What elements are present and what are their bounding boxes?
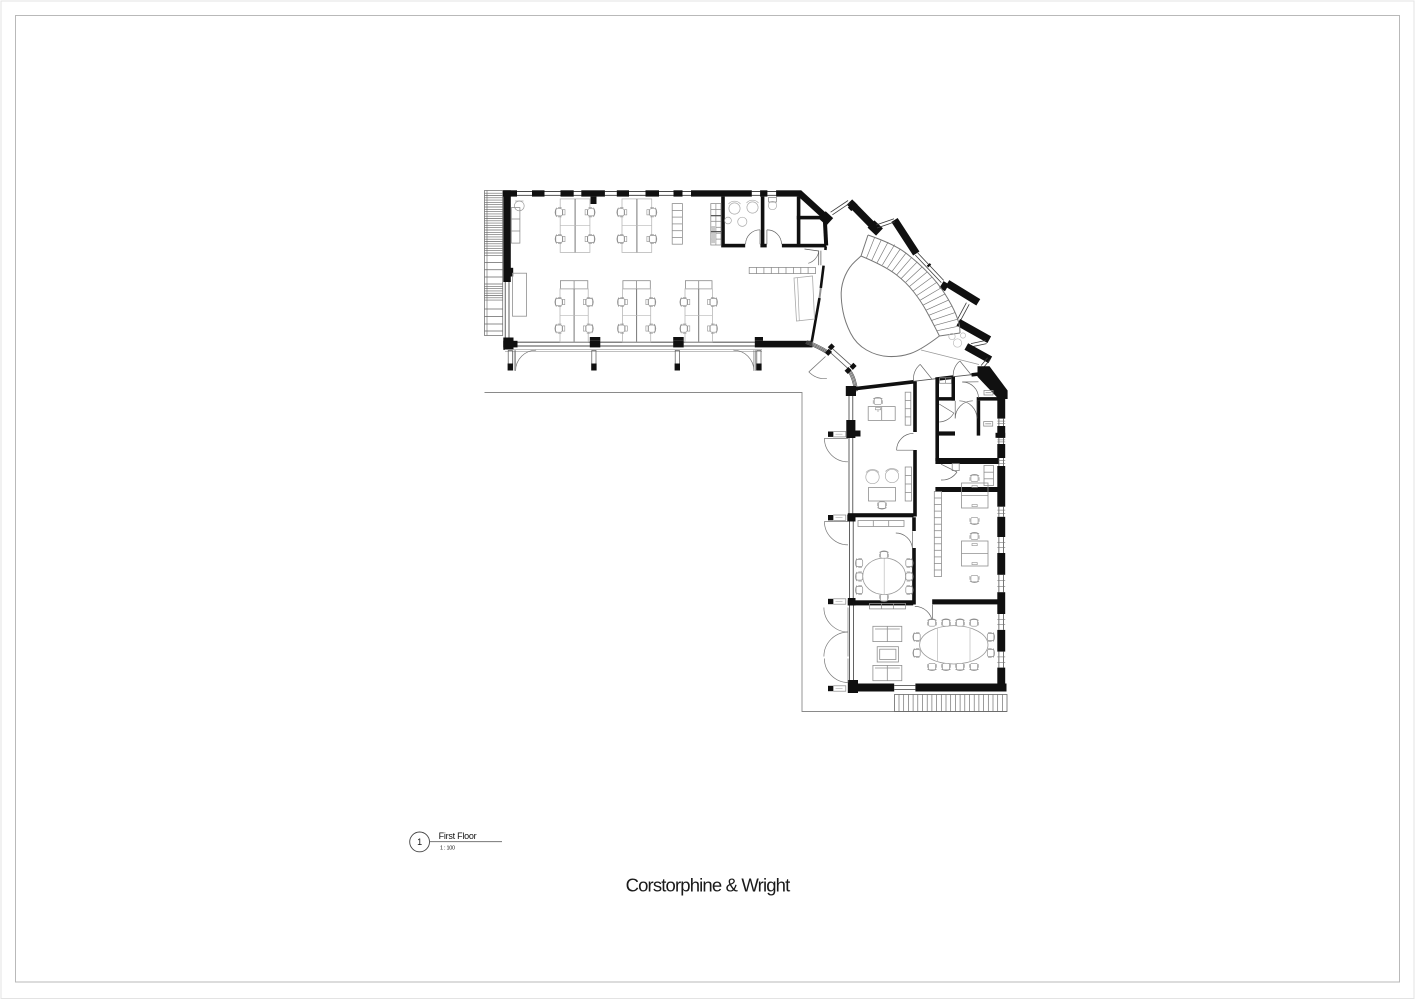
- svg-text:1 : 100: 1 : 100: [440, 846, 455, 852]
- svg-text:Corstorphine & Wright: Corstorphine & Wright: [626, 875, 791, 896]
- svg-text:First Floor: First Floor: [439, 831, 477, 841]
- svg-text:1: 1: [417, 837, 422, 847]
